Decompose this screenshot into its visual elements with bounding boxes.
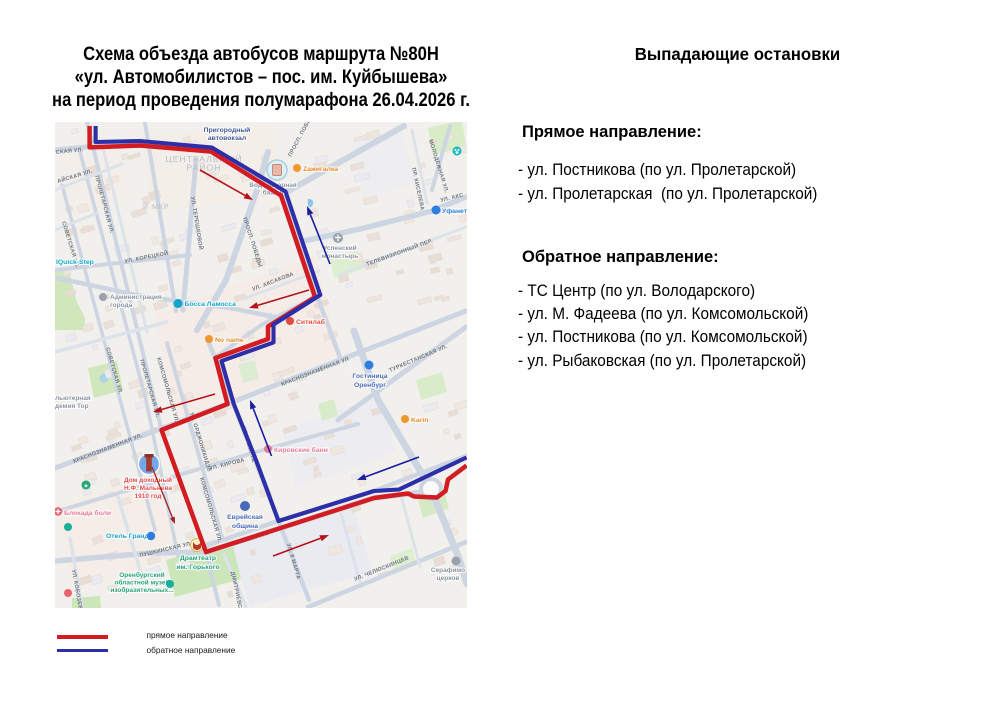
svg-text:Администрация: Администрация: [110, 294, 162, 301]
svg-text:областной музей: областной музей: [114, 579, 169, 587]
svg-text:Отель Гранд: Отель Гранд: [106, 533, 149, 540]
svg-text:IQuick-Step: IQuick-Step: [56, 259, 94, 266]
svg-text:Н.Ф. Мальнева: Н.Ф. Мальнева: [124, 485, 172, 492]
svg-text:Ситилаб: Ситилаб: [296, 318, 325, 326]
svg-text:Оренбург: Оренбург: [354, 381, 386, 389]
svg-text:автовокзал: автовокзал: [208, 135, 246, 142]
svg-text:община: община: [232, 522, 258, 530]
svg-text:Zажигалка: Zажигалка: [303, 166, 338, 173]
svg-text:Й МКР: Й МКР: [143, 202, 170, 211]
svg-text:Серафимо: Серафимо: [431, 567, 465, 574]
svg-text:демия Тор: демия Тор: [55, 403, 89, 410]
svg-text:изобразительных...: изобразительных...: [110, 586, 174, 594]
svg-text:1910 год: 1910 год: [135, 493, 162, 500]
svg-text:Босса Ламосса: Босса Ламосса: [185, 301, 237, 308]
svg-text:им. Горького: им. Горького: [176, 564, 219, 571]
svg-text:города: города: [110, 302, 133, 309]
svg-text:Оренбургский: Оренбургский: [119, 571, 164, 579]
svg-text:Кировские бани: Кировские бани: [274, 446, 328, 454]
svg-text:No name: No name: [215, 337, 244, 344]
svg-text:РАЙОН: РАЙОН: [186, 162, 221, 173]
svg-text:Karin: Karin: [411, 417, 428, 424]
svg-text:Успенский: Успенский: [323, 244, 357, 252]
svg-text:Блокада боли: Блокада боли: [64, 509, 111, 517]
svg-text:Уфанет: Уфанет: [442, 208, 467, 215]
svg-text:церков: церков: [437, 575, 460, 582]
svg-text:Дом доходный: Дом доходный: [124, 476, 172, 484]
svg-text:льютерная: льютерная: [55, 395, 91, 402]
svg-text:Гостиница: Гостиница: [352, 373, 387, 380]
svg-text:★: ★: [84, 483, 89, 490]
svg-text:Еврейская: Еврейская: [227, 513, 263, 521]
svg-text:Пригородный: Пригородный: [204, 126, 251, 134]
svg-text:Драмтеатр: Драмтеатр: [180, 555, 216, 562]
